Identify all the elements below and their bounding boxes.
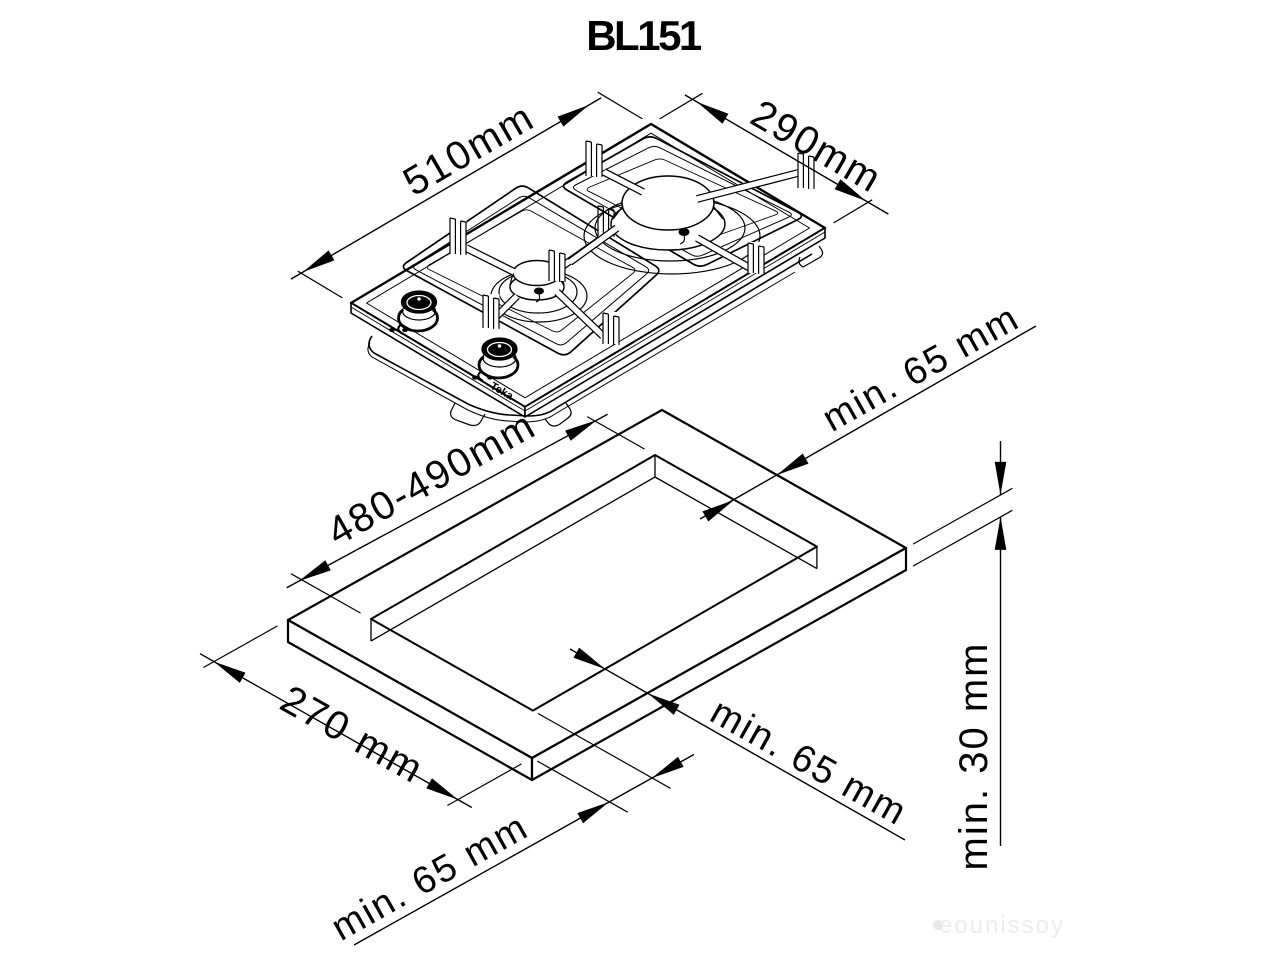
svg-text:BL151: BL151 [586, 12, 702, 59]
svg-text:min. 30 mm: min. 30 mm [952, 642, 996, 871]
svg-text:eounissoy: eounissoy [939, 912, 1065, 939]
